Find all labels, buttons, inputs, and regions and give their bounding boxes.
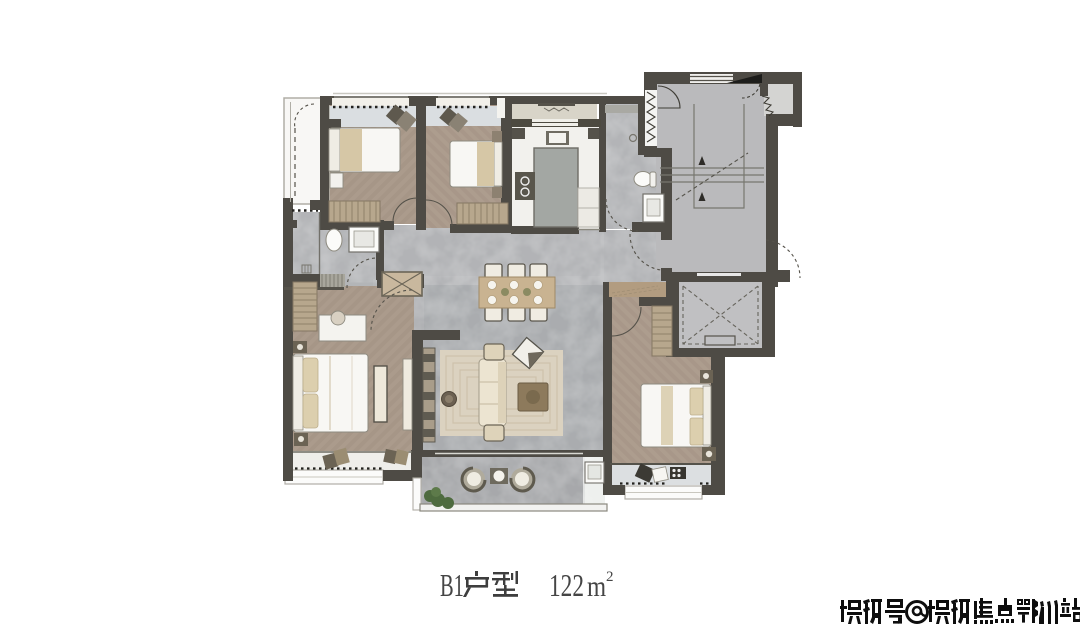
svg-text:122: 122 (549, 569, 584, 604)
svg-text:2: 2 (606, 569, 614, 585)
svg-text:m: m (587, 570, 606, 603)
svg-text:B1: B1 (440, 567, 464, 603)
